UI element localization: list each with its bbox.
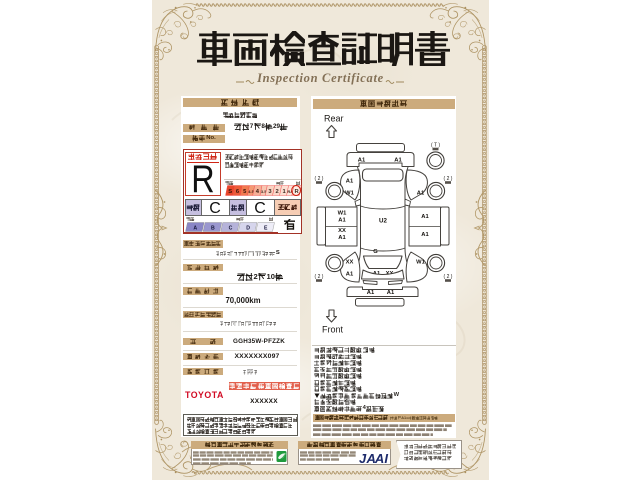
- svg-text:W1: W1: [345, 191, 354, 197]
- svg-text:( T ): ( T ): [431, 143, 440, 149]
- svg-text:A1: A1: [421, 214, 429, 220]
- svg-text:( 2 ): ( 2 ): [315, 176, 324, 182]
- svg-text:G: G: [373, 249, 378, 255]
- svg-text:A1: A1: [421, 232, 429, 238]
- svg-text:( 2 ): ( 2 ): [444, 274, 453, 280]
- svg-text:A1: A1: [394, 158, 402, 164]
- svg-text:XX: XX: [346, 260, 354, 266]
- svg-text:A1: A1: [338, 218, 346, 224]
- svg-text:A1: A1: [387, 290, 395, 296]
- svg-text:A1: A1: [346, 179, 354, 185]
- svg-text:( 2 ): ( 2 ): [444, 176, 453, 182]
- svg-text:Front: Front: [322, 325, 344, 335]
- svg-text:E: E: [264, 225, 268, 231]
- svg-text:U2: U2: [379, 218, 387, 225]
- svg-text:A1: A1: [358, 158, 366, 164]
- svg-text:A1: A1: [338, 235, 346, 241]
- svg-text:A1: A1: [417, 191, 425, 197]
- svg-text:A: A: [193, 225, 197, 231]
- svg-text:B: B: [211, 225, 215, 231]
- svg-text:2: 2: [275, 189, 278, 195]
- svg-text:A1: A1: [367, 290, 375, 296]
- svg-text:Rear: Rear: [324, 114, 344, 124]
- svg-text:S: S: [228, 189, 232, 195]
- svg-text:XX: XX: [338, 228, 346, 234]
- svg-text:C: C: [229, 225, 233, 231]
- svg-text:W1: W1: [416, 260, 425, 266]
- svg-text:A1: A1: [346, 272, 354, 278]
- svg-text:W1: W1: [338, 211, 347, 217]
- svg-text:( 2 ): ( 2 ): [315, 274, 324, 280]
- svg-text:D: D: [246, 225, 250, 231]
